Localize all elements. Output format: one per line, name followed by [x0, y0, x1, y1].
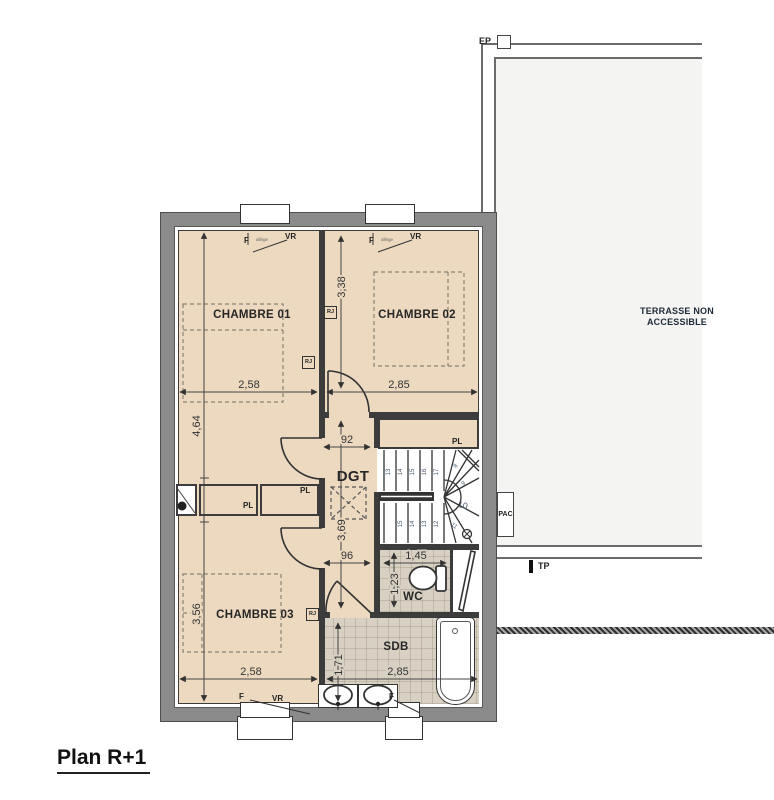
- svg-text:15: 15: [410, 468, 416, 475]
- rj-socket-ch01: RJ: [302, 356, 315, 369]
- dim-hall-width-top: 92: [341, 434, 353, 446]
- dim-wc-width: 1,45: [405, 550, 426, 562]
- window-ch01-allege-note: allège: [256, 237, 268, 242]
- window-ch02-vr-label: VR: [410, 232, 421, 241]
- rj-socket-ch03: RJ: [306, 608, 319, 621]
- dim-sdb-depth: 1,71: [333, 654, 345, 675]
- dim-left-depth: 4,64: [191, 415, 203, 436]
- room-label-ch03: CHAMBRE 03: [216, 609, 294, 621]
- window-ch02-f-label: F: [369, 236, 374, 245]
- room-label-wc: WC: [403, 591, 423, 603]
- sink-basins: [324, 686, 392, 711]
- rj-socket-ch02: RJ: [324, 306, 337, 319]
- door-sdb: [326, 581, 372, 614]
- svg-text:16: 16: [422, 468, 428, 475]
- page-title: Plan R+1: [57, 746, 150, 774]
- svg-text:12: 12: [434, 520, 440, 527]
- door-wc: [459, 551, 475, 611]
- closet-label-pl-2: PL: [300, 486, 310, 495]
- closet-label-pl-3: PL: [452, 437, 462, 446]
- window-ch02-allege-note: allège: [381, 237, 393, 242]
- dim-ch02-depth: 3,38: [336, 276, 348, 297]
- bathtub-drain: [453, 629, 458, 634]
- room-label-dgt: DGT: [337, 468, 370, 485]
- svg-text:17: 17: [434, 468, 440, 475]
- svg-text:14: 14: [398, 468, 404, 475]
- door-ch01: [281, 438, 322, 479]
- dim-hall-width-bottom: 96: [341, 550, 353, 562]
- svg-text:9: 9: [461, 480, 467, 487]
- dim-ch01-width: 2,58: [238, 379, 259, 391]
- closet-label-pl-1: PL: [243, 501, 253, 510]
- toilet: [410, 566, 447, 591]
- window-ch01-vr-label: VR: [285, 232, 296, 241]
- window-ch03-vr-label: VR: [272, 694, 283, 703]
- vmc-symbol: [177, 488, 195, 513]
- floor-plan-page: TERRASSE NON ACCESSIBLE EP TP PAC: [0, 0, 774, 800]
- svg-text:13: 13: [386, 468, 392, 475]
- svg-text:8: 8: [453, 463, 460, 470]
- dim-ch03-depth: 3,56: [191, 603, 203, 624]
- window-ch03-f-label: F: [239, 692, 244, 701]
- room-label-sdb: SDB: [383, 641, 408, 653]
- dim-ch03-width: 2,58: [240, 666, 261, 678]
- svg-text:13: 13: [422, 520, 428, 527]
- window-sdb-f-label: F: [389, 692, 394, 701]
- window-ch01-f-label: F: [244, 236, 249, 245]
- dim-hall-length: 3,69: [336, 519, 348, 540]
- svg-text:15: 15: [398, 520, 404, 527]
- svg-text:14: 14: [410, 520, 416, 527]
- staircase: 13 14 15 16 17 8 9 10 11 12 13 14 15: [379, 450, 479, 543]
- sink-right-basin: [364, 686, 392, 705]
- dim-wc-depth: 1,23: [389, 573, 401, 594]
- plan-linework: 13 14 15 16 17 8 9 10 11 12 13 14 15: [0, 0, 774, 800]
- dim-ch02-width: 2,85: [388, 379, 409, 391]
- door-ch03: [281, 528, 322, 569]
- room-label-ch01: CHAMBRE 01: [213, 309, 291, 321]
- dim-sdb-width: 2,85: [387, 666, 408, 678]
- room-label-ch02: CHAMBRE 02: [378, 309, 456, 321]
- attic-hatch: [331, 487, 366, 519]
- window-sdb-swing-line: [394, 700, 420, 713]
